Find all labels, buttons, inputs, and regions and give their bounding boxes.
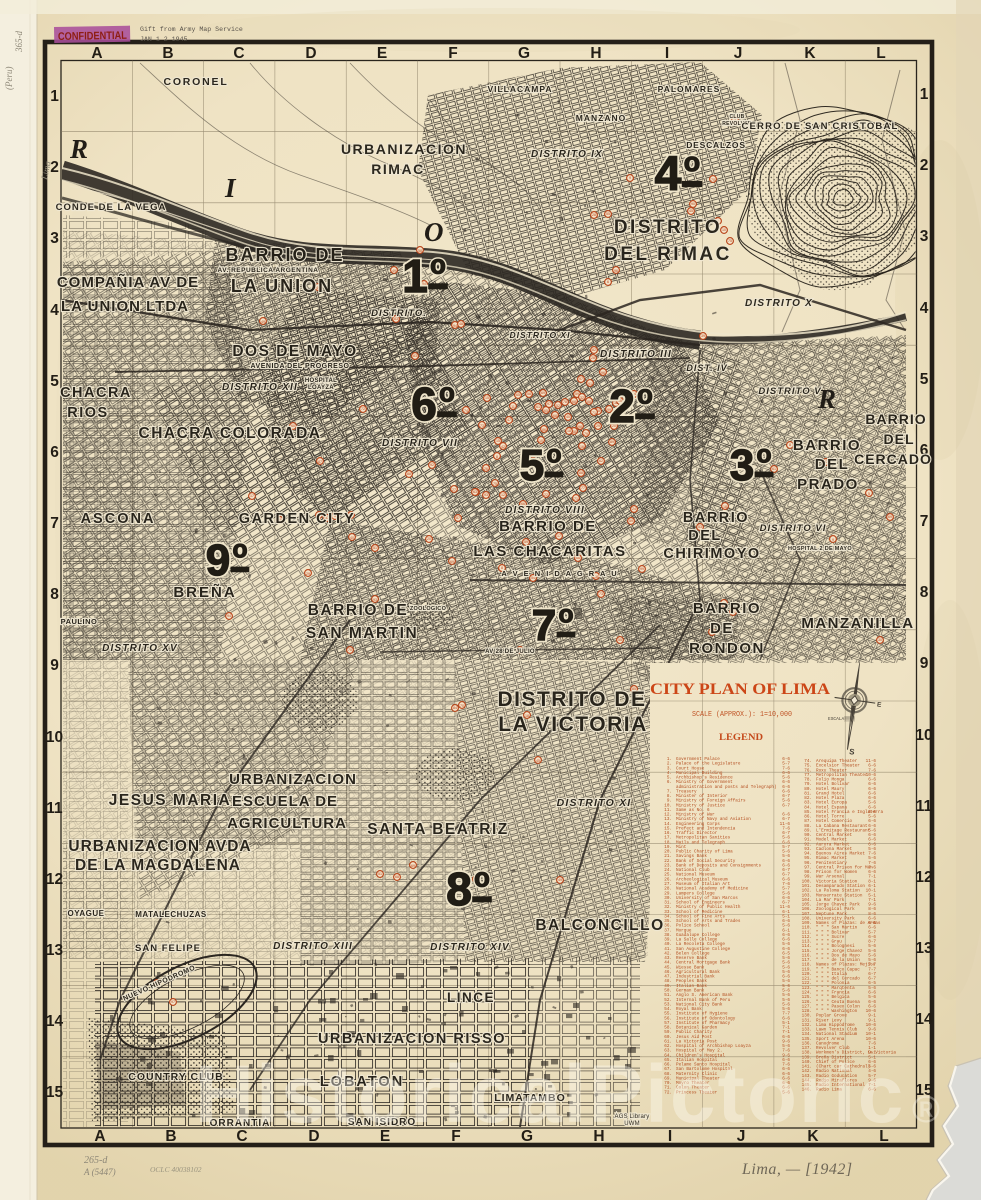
svg-text:94: 94 xyxy=(227,614,231,618)
svg-text:o: o xyxy=(474,865,490,893)
svg-text:CLUB: CLUB xyxy=(729,114,744,120)
svg-text:DISTRITO.: DISTRITO. xyxy=(371,308,427,319)
svg-text:77: 77 xyxy=(581,486,585,490)
svg-text:61: 61 xyxy=(772,467,776,471)
svg-text:59: 59 xyxy=(629,519,633,523)
svg-text:68: 68 xyxy=(395,875,399,879)
svg-text:DISTRITO VII: DISTRITO VII xyxy=(382,438,458,449)
svg-text:28: 28 xyxy=(592,213,596,217)
svg-text:DEL RIMAC: DEL RIMAC xyxy=(604,244,732,265)
svg-text:96: 96 xyxy=(601,371,605,375)
svg-text:CHACRA: CHACRA xyxy=(60,385,132,401)
svg-text:87: 87 xyxy=(456,516,460,520)
svg-text:DISTRITO XI: DISTRITO XI xyxy=(557,797,632,809)
svg-text:LA VICTORIA: LA VICTORIA xyxy=(498,713,648,736)
svg-text:CHACRA COLORADA: CHACRA COLORADA xyxy=(139,425,322,442)
svg-text:365-d: 365-d xyxy=(14,31,24,53)
svg-text:69: 69 xyxy=(541,391,545,395)
svg-text:CHIRIMOYO: CHIRIMOYO xyxy=(663,546,760,562)
svg-text:J: J xyxy=(734,45,743,62)
svg-text:E: E xyxy=(377,45,387,62)
svg-text:BARRIO: BARRIO xyxy=(865,411,926,427)
svg-text:29: 29 xyxy=(306,572,310,576)
svg-text:ESCUELA DE: ESCUELA DE xyxy=(232,793,338,810)
svg-text:DISTRITO XII: DISTRITO XII xyxy=(222,382,298,393)
svg-text:18: 18 xyxy=(567,429,571,433)
svg-text:R: R xyxy=(69,134,88,164)
svg-text:4: 4 xyxy=(50,302,59,319)
svg-text:13: 13 xyxy=(915,940,933,957)
svg-text:o: o xyxy=(756,441,771,468)
svg-text:9: 9 xyxy=(50,657,59,674)
svg-text:DISTRITO VI: DISTRITO VI xyxy=(760,523,827,534)
svg-text:BARRIO DE: BARRIO DE xyxy=(308,602,408,619)
svg-text:SANTA BEATRIZ: SANTA BEATRIZ xyxy=(367,821,508,838)
svg-text:DEL: DEL xyxy=(688,528,722,544)
svg-text:5: 5 xyxy=(868,492,870,496)
svg-text:Gift from Army Map Service: Gift from Army Map Service xyxy=(140,26,243,33)
svg-text:DIST. IV: DIST. IV xyxy=(686,363,727,373)
svg-text:12: 12 xyxy=(46,871,63,888)
svg-text:o: o xyxy=(430,252,446,280)
svg-text:51: 51 xyxy=(373,546,377,550)
svg-text:45: 45 xyxy=(689,209,693,213)
svg-text:63: 63 xyxy=(473,490,477,494)
svg-text:D: D xyxy=(305,45,316,62)
svg-text:9: 9 xyxy=(920,655,929,672)
svg-text:52: 52 xyxy=(556,404,560,408)
svg-text:LOAYZA: LOAYZA xyxy=(308,385,334,391)
svg-text:5: 5 xyxy=(50,373,59,390)
svg-text:BREÑA: BREÑA xyxy=(173,583,236,601)
svg-text:97: 97 xyxy=(171,1000,175,1004)
svg-text:DISTRITO DE: DISTRITO DE xyxy=(497,688,646,711)
svg-text:2: 2 xyxy=(609,380,635,432)
svg-text:ASCONA: ASCONA xyxy=(81,511,156,527)
svg-text:27: 27 xyxy=(452,488,456,492)
svg-text:84: 84 xyxy=(453,706,457,710)
svg-text:79: 79 xyxy=(584,432,588,436)
svg-text:17: 17 xyxy=(250,494,254,498)
svg-text:AVENIDA DEL PROGRESO: AVENIDA DEL PROGRESO xyxy=(251,363,350,370)
svg-text:14: 14 xyxy=(46,1013,64,1030)
svg-text:83: 83 xyxy=(413,354,417,358)
svg-text:82: 82 xyxy=(592,348,596,352)
svg-text:CITY PLAN OF LIMA: CITY PLAN OF LIMA xyxy=(650,681,831,698)
svg-text:8: 8 xyxy=(920,584,929,601)
svg-text:DISTRITO III: DISTRITO III xyxy=(600,349,672,360)
svg-text:URBANIZACION: URBANIZACION xyxy=(341,141,467,157)
svg-text:96: 96 xyxy=(614,269,618,273)
svg-text:6: 6 xyxy=(50,444,59,461)
svg-text:11: 11 xyxy=(916,798,933,815)
svg-text:F: F xyxy=(448,45,457,62)
svg-text:71: 71 xyxy=(592,411,596,415)
svg-text:LINCE: LINCE xyxy=(447,990,495,1005)
svg-text:HOSPITAL: HOSPITAL xyxy=(305,378,337,384)
svg-text:69: 69 xyxy=(411,864,415,868)
svg-text:SAN MARTIN: SAN MARTIN xyxy=(306,625,418,642)
svg-text:39: 39 xyxy=(701,334,705,338)
svg-text:PALOMARES: PALOMARES xyxy=(658,84,721,94)
svg-text:4: 4 xyxy=(920,300,929,317)
svg-text:40: 40 xyxy=(566,415,570,419)
svg-text:45: 45 xyxy=(536,759,540,763)
svg-text:92: 92 xyxy=(430,463,434,467)
svg-text:DISTRITO XV: DISTRITO XV xyxy=(102,643,178,654)
svg-text:3: 3 xyxy=(920,228,929,245)
svg-text:LAS CHACARITAS: LAS CHACARITAS xyxy=(473,543,626,560)
svg-text:AV. REPUBLICA ARGENTINA: AV. REPUBLICA ARGENTINA xyxy=(218,267,319,274)
svg-text:91: 91 xyxy=(588,382,592,386)
svg-text:7: 7 xyxy=(50,515,59,532)
svg-text:49: 49 xyxy=(558,878,562,882)
svg-text:BARRIO DE: BARRIO DE xyxy=(499,518,597,535)
svg-text:14: 14 xyxy=(915,1011,933,1028)
svg-text:97: 97 xyxy=(579,377,583,381)
svg-text:68: 68 xyxy=(572,400,576,404)
svg-text:BARRIO: BARRIO xyxy=(693,600,761,617)
svg-text:O: O xyxy=(424,217,444,247)
svg-text:87: 87 xyxy=(318,460,322,464)
svg-text:15: 15 xyxy=(496,439,500,443)
svg-text:74: 74 xyxy=(464,409,468,413)
svg-text:URBANIZACION AVDA: URBANIZACION AVDA xyxy=(68,838,251,855)
svg-text:I: I xyxy=(665,45,669,62)
svg-text:15: 15 xyxy=(46,1084,64,1101)
svg-text:(Peru): (Peru) xyxy=(4,67,14,91)
svg-text:DISTRITO XI: DISTRITO XI xyxy=(510,330,571,340)
svg-text:89: 89 xyxy=(610,440,614,444)
svg-text:CERRO DE SAN CRISTOBAL: CERRO DE SAN CRISTOBAL xyxy=(741,121,898,132)
svg-text:12: 12 xyxy=(501,493,505,497)
svg-text:4: 4 xyxy=(655,148,682,201)
svg-text:PAULINO: PAULINO xyxy=(61,617,98,626)
svg-text:o: o xyxy=(546,441,561,468)
svg-text:12: 12 xyxy=(915,869,932,886)
svg-text:o: o xyxy=(558,601,573,628)
svg-text:®: ® xyxy=(912,1089,940,1131)
svg-text:20: 20 xyxy=(427,537,431,541)
svg-text:16: 16 xyxy=(580,445,584,449)
svg-text:7: 7 xyxy=(532,601,556,650)
svg-text:8: 8 xyxy=(50,586,59,603)
svg-text:10: 10 xyxy=(722,228,726,232)
svg-text:29: 29 xyxy=(596,424,600,428)
svg-text:70: 70 xyxy=(711,178,715,182)
svg-text:9: 9 xyxy=(629,176,631,180)
svg-text:62: 62 xyxy=(599,459,603,463)
svg-text:CONDE DE LA VEGA: CONDE DE LA VEGA xyxy=(56,202,167,213)
svg-text:70: 70 xyxy=(348,648,352,652)
svg-text:I: I xyxy=(224,173,237,203)
svg-text:BARRIO DE: BARRIO DE xyxy=(225,245,344,265)
svg-text:55: 55 xyxy=(606,212,610,216)
svg-text:L: L xyxy=(876,45,885,62)
svg-text:265-d: 265-d xyxy=(84,1155,108,1166)
svg-text:o: o xyxy=(232,536,247,563)
svg-text:DISTRITO V: DISTRITO V xyxy=(758,386,821,397)
svg-text:C: C xyxy=(233,45,244,62)
svg-text:75: 75 xyxy=(728,239,732,243)
svg-text:CERCADO: CERCADO xyxy=(854,451,932,467)
svg-text:58: 58 xyxy=(527,392,531,396)
svg-text:78: 78 xyxy=(563,400,567,404)
svg-text:55: 55 xyxy=(618,638,622,642)
svg-text:1: 1 xyxy=(920,86,929,103)
svg-text:2: 2 xyxy=(920,157,929,174)
svg-text:30: 30 xyxy=(878,638,882,642)
svg-text:8: 8 xyxy=(789,443,791,447)
svg-text:MANZANILLA: MANZANILLA xyxy=(801,615,914,632)
svg-text:H: H xyxy=(590,45,601,62)
svg-text:LEGEND: LEGEND xyxy=(719,733,763,743)
svg-text:49: 49 xyxy=(392,269,396,273)
svg-text:70: 70 xyxy=(460,704,464,708)
svg-text:3: 3 xyxy=(730,441,754,490)
svg-text:5: 5 xyxy=(520,441,544,490)
svg-text:LA UNION LTDA: LA UNION LTDA xyxy=(61,298,189,315)
svg-text:A V E N I D A G R A U: A V E N I D A G R A U xyxy=(501,569,618,578)
svg-text:1: 1 xyxy=(50,88,59,105)
svg-text:11: 11 xyxy=(46,800,63,817)
svg-text:86: 86 xyxy=(542,428,546,432)
svg-text:DE: DE xyxy=(710,620,734,637)
svg-text:88: 88 xyxy=(407,472,411,476)
svg-text:22: 22 xyxy=(544,493,548,497)
svg-text:8: 8 xyxy=(446,863,472,915)
svg-text:A: A xyxy=(94,1128,105,1145)
svg-text:BALCONCILLO: BALCONCILLO xyxy=(535,917,664,934)
svg-text:OYAGUE: OYAGUE xyxy=(68,909,105,918)
svg-text:URBANIZACION: URBANIZACION xyxy=(229,771,357,788)
svg-text:MANZANO: MANZANO xyxy=(576,113,626,123)
svg-text:73: 73 xyxy=(480,424,484,428)
svg-text:47: 47 xyxy=(507,418,511,422)
svg-text:28: 28 xyxy=(591,356,595,360)
svg-text:69: 69 xyxy=(888,515,892,519)
svg-text:DEL: DEL xyxy=(884,431,915,447)
svg-text:73: 73 xyxy=(599,592,603,596)
svg-text:93: 93 xyxy=(484,493,488,497)
svg-text:97: 97 xyxy=(547,402,551,406)
svg-text:B: B xyxy=(162,45,173,62)
svg-text:o: o xyxy=(637,382,653,410)
svg-text:24: 24 xyxy=(632,507,636,511)
svg-text:10: 10 xyxy=(46,729,63,746)
svg-text:DISTRITO: DISTRITO xyxy=(614,217,722,238)
svg-text:PRADO: PRADO xyxy=(797,476,859,493)
svg-text:68: 68 xyxy=(553,414,557,418)
svg-text:ZOOLOGICO: ZOOLOGICO xyxy=(410,606,447,612)
svg-text:GARDEN CITY: GARDEN CITY xyxy=(239,511,355,527)
svg-text:15: 15 xyxy=(485,396,489,400)
svg-text:DISTRITO XIV: DISTRITO XIV xyxy=(430,942,510,953)
svg-text:o: o xyxy=(439,380,455,408)
svg-text:HOSPITAL 2 DE MAYO: HOSPITAL 2 DE MAYO xyxy=(788,546,852,552)
svg-text:AV 28 DE JULIO: AV 28 DE JULIO xyxy=(485,649,535,655)
svg-text:11: 11 xyxy=(511,405,515,409)
svg-text:88: 88 xyxy=(579,471,583,475)
svg-text:18: 18 xyxy=(723,505,727,509)
svg-text:DE LA MAGDALENA: DE LA MAGDALENA xyxy=(75,857,241,874)
svg-text:OCLC 40038102: OCLC 40038102 xyxy=(150,1165,202,1174)
svg-text:DISTRITO IX: DISTRITO IX xyxy=(531,149,603,160)
svg-text:ESCALA▒▒▒▒: ESCALA▒▒▒▒ xyxy=(828,716,855,722)
svg-text:DESCALZOS: DESCALZOS xyxy=(686,140,746,150)
svg-text:51: 51 xyxy=(378,872,382,876)
svg-text:48: 48 xyxy=(459,322,463,326)
svg-text:DISTRITO X: DISTRITO X xyxy=(745,298,813,309)
svg-text:69: 69 xyxy=(450,560,454,564)
svg-text:61: 61 xyxy=(536,405,540,409)
svg-text:49: 49 xyxy=(261,320,265,324)
svg-text:DOS DE MAYO: DOS DE MAYO xyxy=(232,343,357,360)
svg-text:DISTRITO XIII: DISTRITO XIII xyxy=(273,941,353,952)
svg-text:9: 9 xyxy=(832,538,834,542)
svg-text:CONFIDENTIAL: CONFIDENTIAL xyxy=(58,30,127,43)
svg-text:G: G xyxy=(518,45,530,62)
svg-text:42: 42 xyxy=(501,445,505,449)
svg-text:6-7: 6-7 xyxy=(782,803,790,808)
svg-text:K: K xyxy=(804,45,816,62)
svg-text:B: B xyxy=(165,1128,176,1145)
svg-text:SCALE (APPROX.): 1=10,000: SCALE (APPROX.): 1=10,000 xyxy=(692,711,792,719)
svg-text:A (5447): A (5447) xyxy=(83,1167,116,1177)
svg-text:VILLACAMPA: VILLACAMPA xyxy=(487,84,552,94)
svg-text:HistoricalPictoric: HistoricalPictoric xyxy=(195,1049,905,1140)
svg-text:32: 32 xyxy=(580,396,584,400)
svg-text:6: 6 xyxy=(607,280,609,284)
svg-text:10: 10 xyxy=(915,727,932,744)
svg-text:98: 98 xyxy=(578,425,582,429)
svg-text:LA UNION: LA UNION xyxy=(231,276,333,296)
svg-text:90: 90 xyxy=(691,202,695,206)
svg-text:DISTRITO VIII: DISTRITO VIII xyxy=(505,505,585,516)
svg-text:9: 9 xyxy=(206,536,230,585)
svg-text:RONDON: RONDON xyxy=(689,640,765,657)
svg-text:71: 71 xyxy=(574,497,578,501)
svg-text:RIOS: RIOS xyxy=(67,405,108,421)
svg-text:40: 40 xyxy=(350,536,354,540)
svg-text:7: 7 xyxy=(920,513,929,530)
svg-text:5: 5 xyxy=(920,371,929,388)
svg-text:1: 1 xyxy=(402,250,428,302)
svg-text:99: 99 xyxy=(640,567,644,571)
svg-text:3: 3 xyxy=(50,230,59,247)
svg-text:AGRICULTURA: AGRICULTURA xyxy=(227,815,347,832)
svg-text:CORONEL: CORONEL xyxy=(163,76,228,88)
svg-text:RIMAC: RIMAC xyxy=(371,161,424,177)
svg-text:94: 94 xyxy=(453,324,457,328)
svg-text:65: 65 xyxy=(544,409,548,413)
svg-text:26: 26 xyxy=(484,467,488,471)
svg-text:MATALECHUZAS: MATALECHUZAS xyxy=(135,910,207,919)
svg-text:o: o xyxy=(684,147,700,177)
svg-text:8: 8 xyxy=(496,455,498,459)
svg-text:75: 75 xyxy=(493,482,497,486)
svg-text:Lima, — [1942]: Lima, — [1942] xyxy=(741,1161,853,1178)
svg-text:JESUS MARIA: JESUS MARIA xyxy=(109,792,231,809)
svg-text:BARRIO: BARRIO xyxy=(793,437,861,454)
svg-text:72: 72 xyxy=(361,407,365,411)
svg-text:65: 65 xyxy=(516,393,520,397)
svg-text:6.: 6. xyxy=(667,780,672,785)
svg-text:88: 88 xyxy=(587,400,591,404)
svg-text:DEL: DEL xyxy=(815,456,850,473)
svg-text:SAN FELIPE: SAN FELIPE xyxy=(135,943,201,954)
svg-text:A: A xyxy=(91,45,102,62)
svg-text:BARRIO: BARRIO xyxy=(683,510,749,526)
svg-text:COMPAÑIA AV DE: COMPAÑIA AV DE xyxy=(57,273,199,291)
svg-text:6: 6 xyxy=(411,378,437,430)
svg-text:URBANIZACION RISSO: URBANIZACION RISSO xyxy=(318,1031,506,1047)
svg-text:13: 13 xyxy=(46,942,64,959)
svg-text:JAN 1 2 1945: JAN 1 2 1945 xyxy=(140,36,188,43)
